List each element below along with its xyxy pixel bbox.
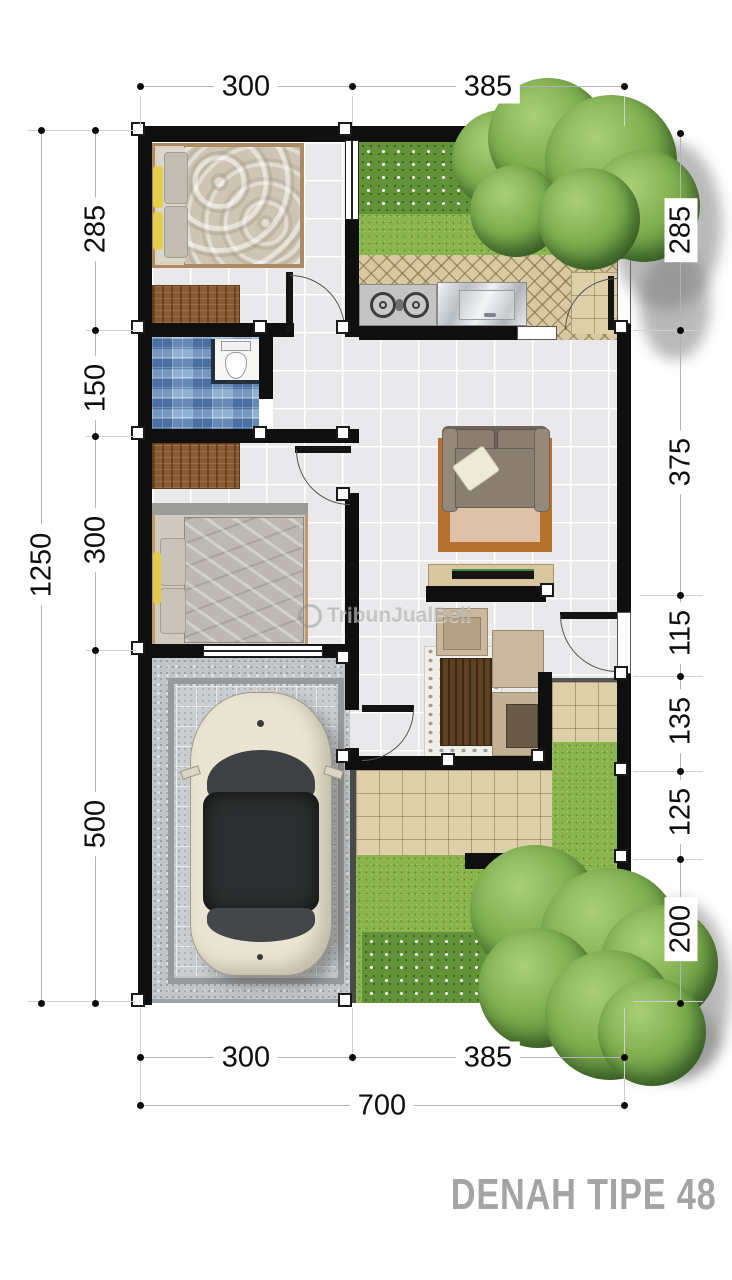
wall-bathroom-right	[259, 337, 273, 399]
dim-dot	[677, 768, 684, 775]
dim-dot	[92, 127, 99, 134]
dim-label-right-285: 285	[665, 198, 698, 262]
window-bedroom1-garden	[345, 140, 359, 220]
car-hood-dot	[257, 720, 264, 727]
extension-line	[633, 676, 703, 677]
dim-dot	[38, 127, 45, 134]
wall-joint-marker	[336, 320, 350, 334]
dim-label-bottom-300: 300	[214, 1042, 278, 1075]
garage-entry-line	[152, 999, 350, 1003]
stove-knob	[396, 299, 403, 311]
dim-dot	[349, 1054, 356, 1061]
bed2-headboard	[152, 503, 308, 515]
bed2-pillow-2	[160, 588, 186, 634]
wall-joint-marker	[614, 320, 628, 334]
dim-dot	[92, 647, 99, 654]
extension-line	[624, 96, 625, 126]
wall-tv	[426, 586, 546, 602]
wall-joint-marker	[614, 762, 628, 776]
wall-joint-marker	[336, 487, 350, 501]
dim-label-right-135: 135	[665, 689, 698, 753]
extension-line	[640, 595, 703, 596]
wall-joint-marker	[540, 583, 554, 597]
dim-dot	[677, 592, 684, 599]
dim-label-right-125: 125	[665, 780, 698, 844]
car-roof	[203, 792, 319, 912]
counter-white-band	[517, 326, 557, 340]
wall-joint-marker	[336, 426, 350, 440]
dim-dot	[137, 83, 144, 90]
dim-dot	[38, 1000, 45, 1007]
wall-joint-marker	[441, 753, 455, 767]
wall-bedroom2-right	[345, 493, 359, 658]
dim-label-1250: 1250	[26, 525, 59, 606]
wall-left	[138, 126, 152, 1005]
dim-dot	[621, 1102, 628, 1109]
dining-bench-cushion	[506, 704, 538, 748]
dim-dot	[92, 433, 99, 440]
porch-tiles	[552, 682, 617, 742]
dim-dot	[349, 83, 356, 90]
stove-burner-right	[403, 292, 429, 318]
watermark: TribunJualBeli	[298, 604, 472, 628]
dim-label-700: 700	[350, 1090, 414, 1123]
wall-kitchen-counter-edge	[359, 326, 517, 340]
watermark-text: TribunJualBeli	[327, 604, 472, 628]
dim-line-bottom	[140, 1057, 624, 1058]
bed1-pillow-yellow-1	[153, 166, 163, 208]
watermark-logo-icon	[298, 604, 322, 628]
dim-label-bottom-385: 385	[456, 1042, 520, 1075]
stove-burner-left	[370, 292, 396, 318]
wall-bedroom1-bottom	[152, 323, 294, 337]
wall-joint-marker	[253, 320, 267, 334]
wall-joint-marker	[253, 426, 267, 440]
dim-label-right-375: 375	[665, 430, 698, 494]
tree-shadow	[640, 250, 710, 360]
tree-bottom	[598, 978, 706, 1086]
bed2-blanket	[184, 517, 304, 643]
tree-top	[538, 168, 640, 270]
dim-dot	[92, 1000, 99, 1007]
garage-garden-divider	[350, 770, 356, 1003]
wall-joint-marker	[131, 426, 145, 440]
wall-joint-marker	[338, 122, 352, 136]
front-door-threshold	[617, 612, 631, 674]
terrace-tiles	[356, 770, 552, 855]
wall-joint-marker	[614, 849, 628, 863]
toilet-tank	[221, 341, 251, 351]
dim-dot	[677, 1000, 684, 1007]
bathroom-door-gap	[259, 399, 273, 429]
dim-line-right	[680, 133, 681, 1003]
dim-dot	[677, 673, 684, 680]
tv	[452, 569, 534, 579]
dim-dot	[621, 1054, 628, 1061]
wall-joint-marker	[336, 749, 350, 763]
porch-edge-line	[552, 678, 617, 682]
car	[190, 690, 332, 980]
bed1-blanket	[184, 146, 301, 265]
dim-label-right-115: 115	[665, 602, 698, 664]
bedroom2-dresser	[152, 443, 240, 489]
car-trunk-dot	[257, 954, 263, 960]
dim-dot	[92, 327, 99, 334]
wall-joint-marker	[614, 666, 628, 680]
wall-joint-marker	[131, 320, 145, 334]
wall-joint-marker	[131, 122, 145, 136]
bed1-pillow-gray-1	[164, 152, 188, 204]
wall-joint-marker	[131, 993, 145, 1007]
wall-joint-marker	[336, 650, 350, 664]
wall-joint-marker	[338, 993, 352, 1007]
sofa-arm-right	[534, 428, 550, 512]
dim-line-top	[140, 86, 624, 87]
dim-label-right-200: 200	[665, 897, 698, 961]
wall-joint-marker	[531, 749, 545, 763]
dim-label-top-385: 385	[456, 71, 520, 104]
floor-plan-canvas: 300 385 1250 285 150 300 500 285 375 115…	[0, 0, 732, 1280]
bed2-pillow-1	[160, 538, 186, 586]
dim-label-left-150: 150	[80, 356, 113, 420]
dim-label-left-300: 300	[80, 508, 113, 572]
dim-label-left-285: 285	[80, 197, 113, 261]
extension-line	[633, 859, 703, 860]
page-title: DENAH TIPE 48	[451, 1170, 638, 1220]
dim-dot	[137, 1102, 144, 1109]
dim-dot	[677, 327, 684, 334]
wall-dining-left-upper	[345, 658, 359, 710]
extension-line	[633, 771, 703, 772]
bed1-pillow-yellow-2	[153, 212, 163, 250]
bed2-pillow-yellow	[153, 552, 161, 604]
extension-line	[352, 96, 353, 126]
extension-line	[633, 330, 703, 331]
dim-label-top-300: 300	[214, 71, 278, 104]
bed1-pillow-gray-2	[164, 206, 188, 258]
sink-faucet	[484, 313, 496, 317]
dim-dot	[677, 856, 684, 863]
dining-bench-upper	[492, 630, 544, 688]
window-bedroom2-garage	[203, 645, 323, 657]
extension-line	[140, 96, 141, 126]
dining-table	[440, 658, 492, 746]
dim-dot	[677, 130, 684, 137]
dim-label-left-500: 500	[80, 792, 113, 856]
dim-dot	[137, 1054, 144, 1061]
extension-line	[633, 1001, 703, 1002]
wall-joint-marker	[131, 641, 145, 655]
dim-dot	[621, 83, 628, 90]
